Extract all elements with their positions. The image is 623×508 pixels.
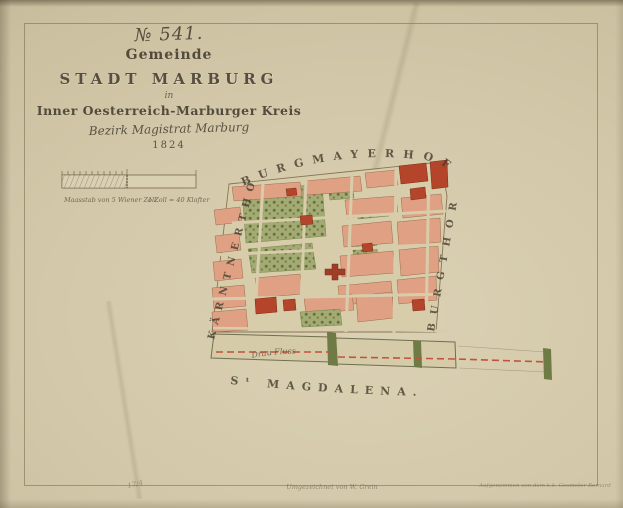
green-band	[413, 340, 422, 368]
map-sheet: № 541. Gemeinde STADT MARBURG in Inner O…	[0, 0, 623, 508]
title-block: № 541. Gemeinde STADT MARBURG in Inner O…	[30, 24, 308, 151]
label-st-magdalena: Sᵗ MAGDALENA.	[230, 374, 424, 399]
kreis-label: Inner Oesterreich-Marburger Kreis	[30, 103, 308, 118]
gemeinde-label: Gemeinde	[30, 47, 308, 63]
riverbank: Drau Fluss	[211, 332, 552, 380]
footer-center: Umgezeichnet von W. Grein	[286, 483, 377, 491]
map-title: STADT MARBURG	[30, 70, 308, 88]
footer-inscriptions: 17/4 Umgezeichnet von W. Grein Aufgenomm…	[127, 479, 612, 491]
green-band	[543, 348, 552, 380]
scale-caption-left: Maasstab von 5 Wiener Zoll.	[63, 196, 158, 204]
scale-bar: Maasstab von 5 Wiener Zoll. 1 Zoll = 40 …	[62, 169, 210, 204]
scale-caption-right: 1 Zoll = 40 Klafter	[148, 196, 210, 204]
green-band	[327, 332, 338, 366]
footer-right: Aufgenommen von dem k.k. Geometer Bernar…	[478, 483, 611, 489]
year-label: 1824	[30, 140, 308, 151]
footer-mark-left: 17/4	[127, 479, 144, 490]
bezirk-label: Bezirk Magistrat Marburg	[30, 118, 308, 139]
in-label: in	[30, 91, 308, 101]
garden-patch	[300, 309, 342, 327]
sheet-number: № 541.	[30, 19, 309, 50]
